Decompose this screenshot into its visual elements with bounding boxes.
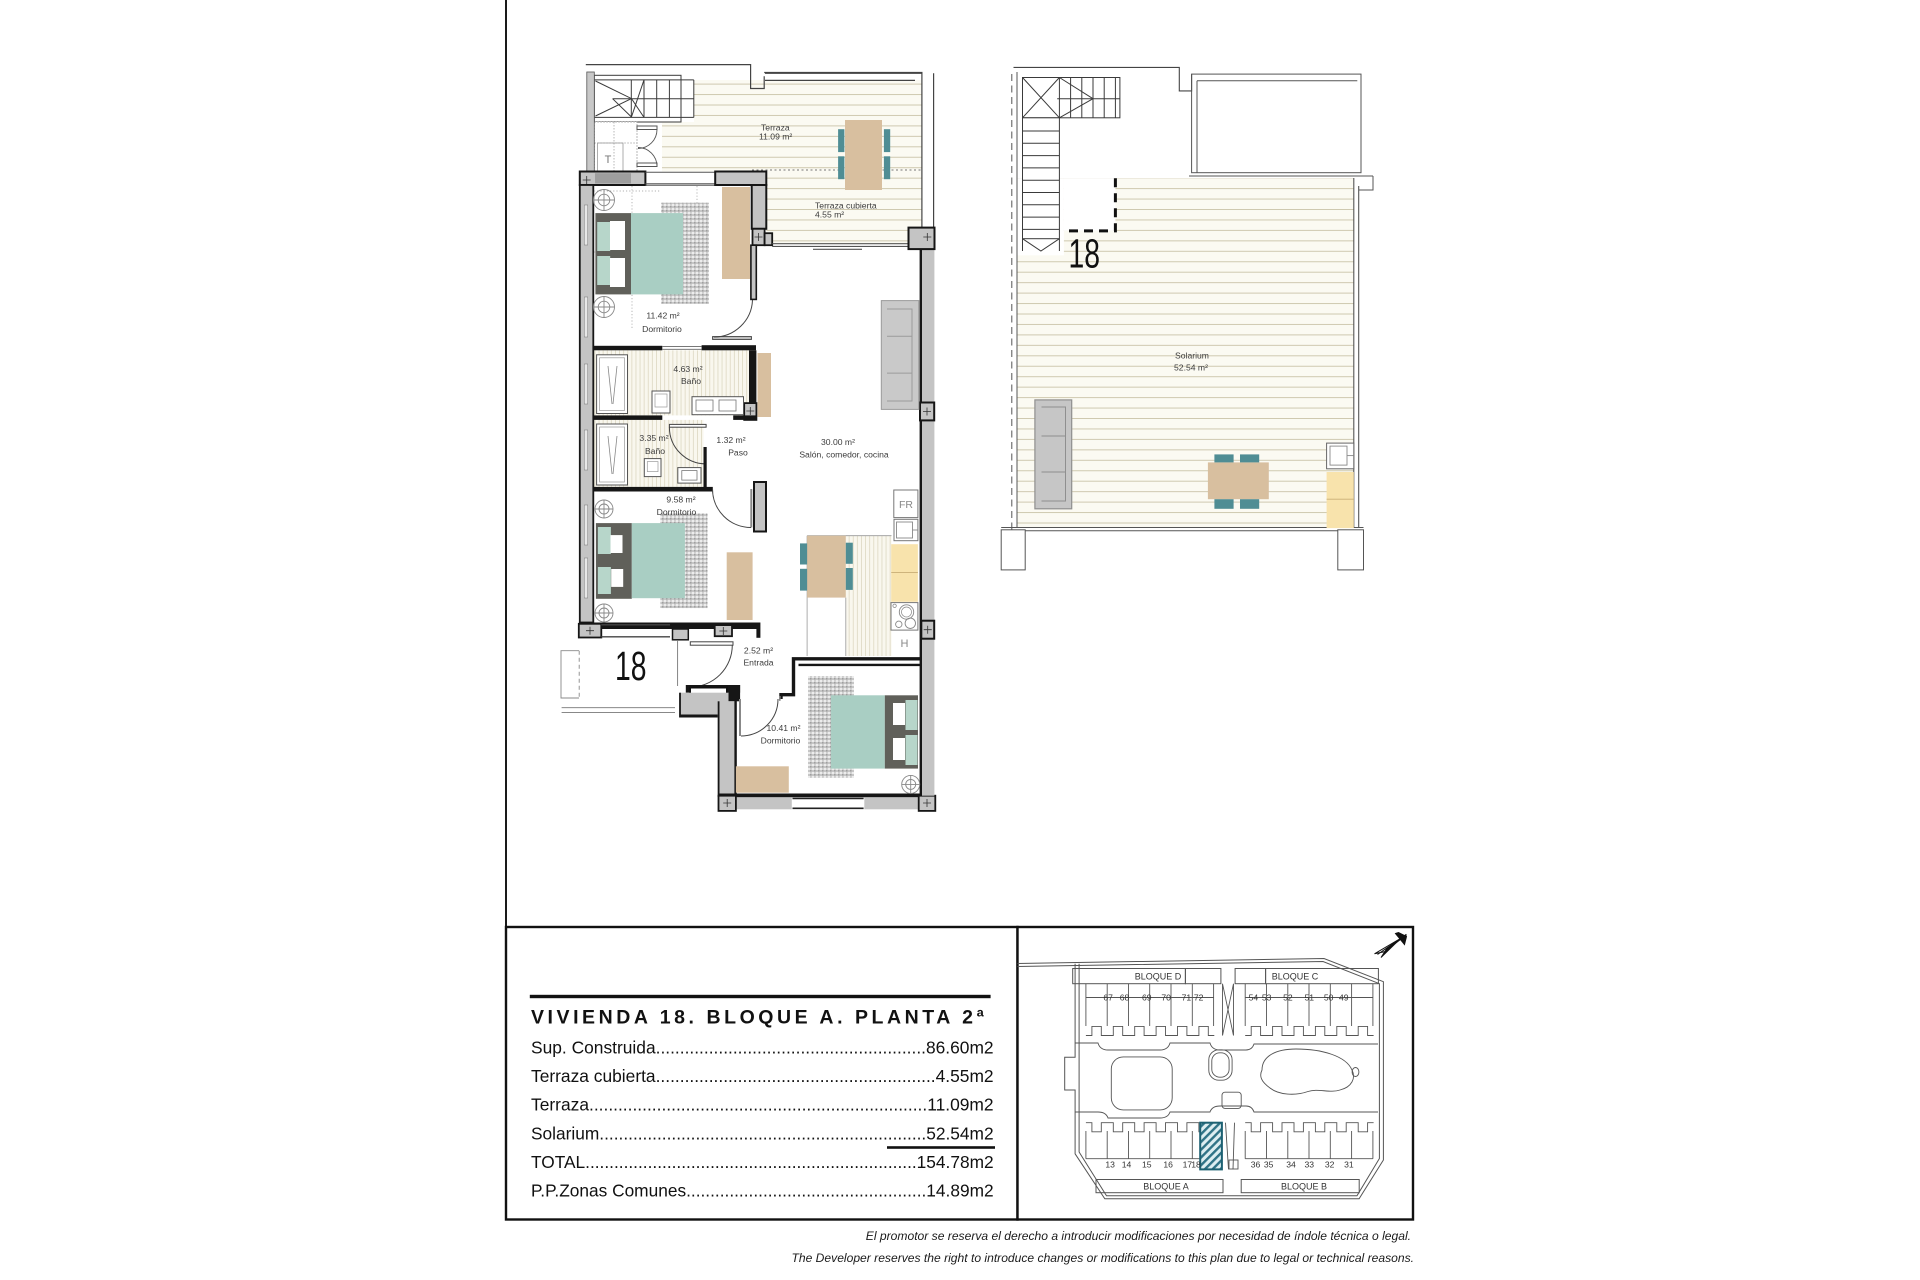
svg-text:El promotor se reserva el dere: El promotor se reserva el derecho a intr… xyxy=(866,1229,1411,1243)
svg-text:3.35 m²: 3.35 m² xyxy=(639,433,668,443)
svg-text:33: 33 xyxy=(1305,1159,1315,1169)
svg-text:Dormitorio: Dormitorio xyxy=(642,324,682,334)
svg-text:T: T xyxy=(605,154,612,166)
svg-text:Solarium: Solarium xyxy=(1175,351,1209,361)
svg-text:32: 32 xyxy=(1325,1159,1335,1169)
svg-text:Baño: Baño xyxy=(645,446,665,456)
svg-text:53: 53 xyxy=(1262,992,1272,1002)
svg-text:1.32 m²: 1.32 m² xyxy=(716,435,745,445)
svg-text:H: H xyxy=(901,638,909,650)
svg-text:34: 34 xyxy=(1286,1159,1296,1169)
svg-text:Sup. Construida...............: Sup. Construida.........................… xyxy=(531,1037,994,1057)
svg-text:15: 15 xyxy=(1142,1159,1152,1169)
svg-text:50: 50 xyxy=(1324,992,1334,1002)
svg-text:52.54 m²: 52.54 m² xyxy=(1174,363,1208,373)
svg-text:Salón, comedor, cocina: Salón, comedor, cocina xyxy=(799,450,889,460)
svg-text:30.00 m²: 30.00 m² xyxy=(821,437,855,447)
svg-text:54: 54 xyxy=(1249,992,1259,1002)
svg-text:FR: FR xyxy=(899,499,913,511)
svg-text:Entrada: Entrada xyxy=(743,658,773,668)
svg-text:9.58 m²: 9.58 m² xyxy=(666,495,695,505)
svg-text:11.09 m²: 11.09 m² xyxy=(759,132,792,142)
svg-text:36: 36 xyxy=(1251,1159,1261,1169)
svg-text:16: 16 xyxy=(1163,1159,1173,1169)
svg-text:49: 49 xyxy=(1339,992,1349,1002)
svg-text:VIVIENDA 18. BLOQUE A. PLANTA: VIVIENDA 18. BLOQUE A. PLANTA 2ª xyxy=(531,1007,987,1029)
svg-text:18: 18 xyxy=(1191,1159,1201,1169)
svg-text:51: 51 xyxy=(1305,992,1315,1002)
svg-text:P.P.Zonas Comunes.............: P.P.Zonas Comunes.......................… xyxy=(531,1181,994,1201)
svg-text:18: 18 xyxy=(1069,231,1101,277)
svg-text:70: 70 xyxy=(1161,992,1171,1002)
svg-text:Dormitorio: Dormitorio xyxy=(761,736,801,746)
svg-text:BLOQUE A: BLOQUE A xyxy=(1143,1182,1189,1192)
svg-text:11.42 m²: 11.42 m² xyxy=(646,311,679,321)
svg-text:BLOQUE D: BLOQUE D xyxy=(1135,972,1182,982)
svg-text:67: 67 xyxy=(1103,992,1113,1002)
svg-text:68: 68 xyxy=(1120,992,1130,1002)
svg-text:Solarium......................: Solarium................................… xyxy=(531,1123,994,1143)
svg-text:31: 31 xyxy=(1344,1159,1354,1169)
svg-text:71: 71 xyxy=(1182,992,1192,1002)
svg-text:69: 69 xyxy=(1142,992,1152,1002)
svg-text:14: 14 xyxy=(1122,1159,1132,1169)
svg-text:72: 72 xyxy=(1194,992,1204,1002)
svg-text:BLOQUE B: BLOQUE B xyxy=(1281,1182,1327,1192)
svg-text:2.52 m²: 2.52 m² xyxy=(744,646,773,656)
svg-text:Dormitorio: Dormitorio xyxy=(657,507,697,517)
svg-text:Terraza cubierta..............: Terraza cubierta........................… xyxy=(531,1066,994,1086)
svg-text:52: 52 xyxy=(1283,992,1293,1002)
svg-text:35: 35 xyxy=(1264,1159,1274,1169)
svg-text:TOTAL.........................: TOTAL...................................… xyxy=(531,1152,994,1172)
svg-text:BLOQUE C: BLOQUE C xyxy=(1272,972,1319,982)
svg-text:4.63 m²: 4.63 m² xyxy=(673,364,702,374)
svg-text:4.55 m²: 4.55 m² xyxy=(815,210,844,220)
svg-text:10.41 m²: 10.41 m² xyxy=(767,723,801,733)
svg-text:Terraza.......................: Terraza.................................… xyxy=(531,1095,994,1115)
svg-text:Baño: Baño xyxy=(681,376,701,386)
svg-text:18: 18 xyxy=(615,643,647,689)
svg-text:13: 13 xyxy=(1105,1159,1115,1169)
svg-text:Paso: Paso xyxy=(728,448,748,458)
svg-text:The Developer reserves the rig: The Developer reserves the right to intr… xyxy=(791,1251,1414,1265)
